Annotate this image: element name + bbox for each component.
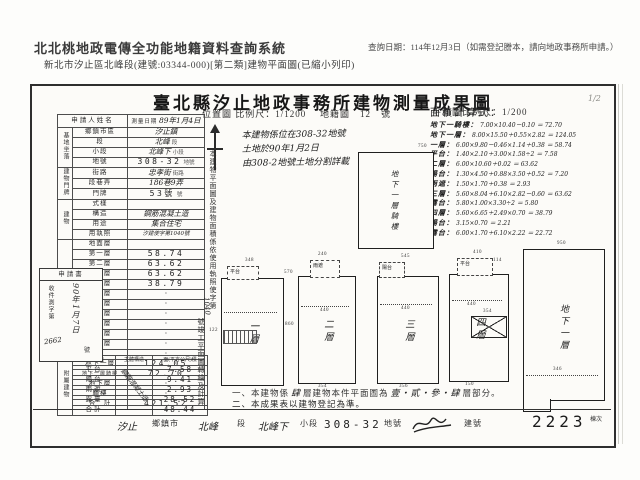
plan-basement-1-step: [523, 399, 551, 412]
dimension-label: 545: [401, 254, 410, 259]
scanned-survey-document-page: 北北桃地政電傳全功能地籍資料查詢系統 查詢日期：114年12月3日（如需登記謄本…: [0, 0, 640, 480]
plan-floor-4-dotted-line: [452, 300, 502, 301]
footer-field: 棟次: [590, 414, 602, 423]
footer-field: 北峰: [198, 418, 218, 433]
dimension-label: 346: [553, 367, 562, 372]
dimension-label: 570: [284, 270, 293, 275]
plan-floor-3-annex: 陽台: [379, 262, 405, 278]
scan-artifact-line: [618, 84, 619, 444]
survey-chart-document: 臺北縣汐止地政事務所建物測量成果圖 1/2 位置圖 比例尺：1/1200 地籍圖…: [30, 84, 616, 448]
plan-basement-1-label: 地下一層: [557, 304, 570, 352]
footer-divider: [33, 409, 611, 410]
system-title: 北北桃地政電傳全功能地籍資料查詢系統: [34, 38, 286, 57]
query-date: 查詢日期：114年12月3日（如需登記謄本，請向地政事務所申請。）: [368, 41, 618, 53]
plan-floor-4-annex: 平台: [457, 258, 493, 276]
footer-field: 小段: [300, 418, 318, 429]
plan-basement-arcade-label: 地下一層騎樓: [389, 170, 400, 233]
scan-artifact-line: [622, 84, 623, 444]
dimension-label: 440: [467, 302, 476, 307]
dimension-label: 950: [557, 241, 566, 246]
plan-floor-2-annex: 雨遮: [310, 260, 340, 278]
footer-strip: 2223 （台灣一等四○六○測量謄繪重製） 北峰段 1040 改繪 3344 建…: [32, 412, 614, 444]
footer-field: 建號: [464, 418, 482, 429]
footer-field: 地號: [384, 418, 402, 429]
annex-label: 平台: [460, 260, 470, 267]
dimension-label: 410: [473, 250, 482, 255]
footer-field: 汐止: [117, 418, 137, 433]
plan-basement-1-dotted-line: [526, 375, 598, 376]
note-text: 層部分。: [463, 388, 501, 398]
footer-field: 北峰下: [258, 418, 288, 433]
document-subtitle: 新北市汐止區北峰段(建號:03344-000)[第二類]建物平面圖(已縮小列印): [44, 57, 355, 71]
dimension-label: 750: [418, 144, 427, 149]
dimension-label: 240: [318, 252, 327, 257]
building-number: 2223: [532, 412, 587, 431]
footer-field: 段: [237, 418, 246, 429]
plan-floor-1-dotted-line: [224, 312, 277, 313]
plan-floor-4-xbox: [471, 316, 507, 338]
note-handwriting: 壹‧貳‧參‧肆: [391, 389, 461, 399]
approval-signature: [410, 414, 454, 434]
annex-label: 陽台: [382, 264, 392, 271]
plan-floor-1-annex: 平台: [227, 266, 259, 280]
annex-label: 雨遮: [313, 262, 323, 269]
dimension-label: 348: [245, 258, 254, 263]
dimension-label: 122: [209, 328, 218, 333]
plan-floor-2-label: 二層: [320, 319, 334, 344]
plan-floor-3-dotted-line: [380, 304, 432, 305]
note-text: 層建物本件平面圖為: [303, 388, 389, 398]
footer-field: 鄉鎮市: [152, 418, 179, 429]
annex-label: 平台: [230, 268, 240, 275]
dimension-label: 440: [401, 306, 410, 311]
plan-floor-1-stairs: [223, 330, 257, 344]
dimension-label: 354: [483, 309, 492, 314]
dimension-label: 114: [493, 258, 502, 263]
dimension-label: 860: [285, 322, 294, 327]
dimension-label: 440: [320, 308, 329, 313]
note-text: 一、本建物係: [232, 388, 289, 398]
plan-floor-3-label: 三層: [401, 319, 415, 344]
plan-floor-2-dotted-line: [301, 306, 349, 307]
footer-field: 308-32: [324, 418, 382, 431]
